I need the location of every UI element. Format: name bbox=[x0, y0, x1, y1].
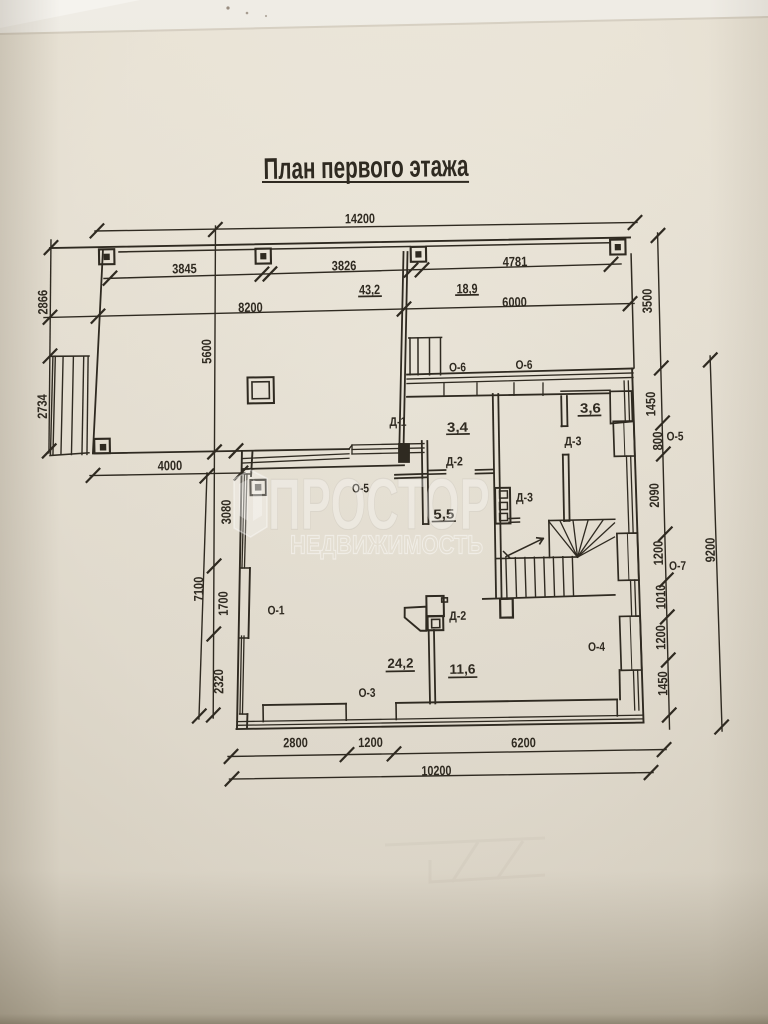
svg-text:8200: 8200 bbox=[238, 300, 263, 315]
svg-text:24,2: 24,2 bbox=[387, 656, 413, 671]
svg-text:2090: 2090 bbox=[647, 483, 662, 508]
svg-text:2320: 2320 bbox=[211, 669, 226, 694]
svg-text:1010: 1010 bbox=[653, 585, 668, 610]
svg-text:1200: 1200 bbox=[651, 541, 666, 566]
svg-text:800: 800 bbox=[650, 431, 665, 450]
svg-text:О-3: О-3 bbox=[358, 686, 375, 700]
svg-text:43,2: 43,2 bbox=[359, 282, 380, 297]
svg-text:2734: 2734 bbox=[35, 394, 50, 419]
svg-text:7100: 7100 bbox=[191, 577, 206, 602]
svg-text:Д-3: Д-3 bbox=[564, 434, 581, 448]
svg-text:О-1: О-1 bbox=[267, 603, 284, 617]
svg-text:9200: 9200 bbox=[703, 538, 718, 563]
svg-text:О-7: О-7 bbox=[669, 559, 686, 573]
svg-text:1700: 1700 bbox=[216, 591, 231, 616]
svg-text:3,4: 3,4 bbox=[447, 420, 469, 435]
svg-text:3500: 3500 bbox=[640, 289, 655, 314]
svg-text:10200: 10200 bbox=[421, 763, 451, 778]
svg-text:6000: 6000 bbox=[502, 294, 527, 309]
svg-text:О-6: О-6 bbox=[515, 358, 532, 372]
svg-text:4000: 4000 bbox=[158, 458, 183, 473]
svg-text:О-5: О-5 bbox=[666, 429, 683, 443]
svg-text:3,6: 3,6 bbox=[580, 400, 602, 415]
svg-text:2800: 2800 bbox=[283, 735, 308, 750]
svg-text:О-6: О-6 bbox=[449, 360, 466, 374]
svg-text:О-4: О-4 bbox=[588, 640, 605, 654]
svg-text:4781: 4781 bbox=[503, 254, 528, 269]
svg-text:3826: 3826 bbox=[332, 258, 357, 273]
svg-text:1200: 1200 bbox=[358, 735, 383, 750]
svg-text:НЕДВИЖИМОСТЬ: НЕДВИЖИМОСТЬ bbox=[290, 530, 483, 560]
svg-text:11,6: 11,6 bbox=[449, 661, 476, 676]
svg-text:1200: 1200 bbox=[653, 625, 668, 650]
svg-text:3080: 3080 bbox=[218, 500, 233, 525]
svg-text:Д-2: Д-2 bbox=[449, 609, 466, 623]
svg-text:2866: 2866 bbox=[35, 289, 50, 314]
svg-text:Д-3: Д-3 bbox=[516, 490, 533, 504]
svg-text:3845: 3845 bbox=[172, 261, 197, 276]
svg-text:5600: 5600 bbox=[199, 339, 214, 364]
svg-text:6200: 6200 bbox=[511, 735, 536, 750]
svg-text:План первого этажа: План первого этажа bbox=[263, 150, 469, 186]
svg-text:Д-1: Д-1 bbox=[389, 415, 406, 429]
svg-text:14200: 14200 bbox=[345, 211, 375, 226]
svg-text:1450: 1450 bbox=[655, 671, 670, 696]
svg-text:1450: 1450 bbox=[643, 392, 658, 417]
svg-text:18,9: 18,9 bbox=[456, 281, 477, 296]
